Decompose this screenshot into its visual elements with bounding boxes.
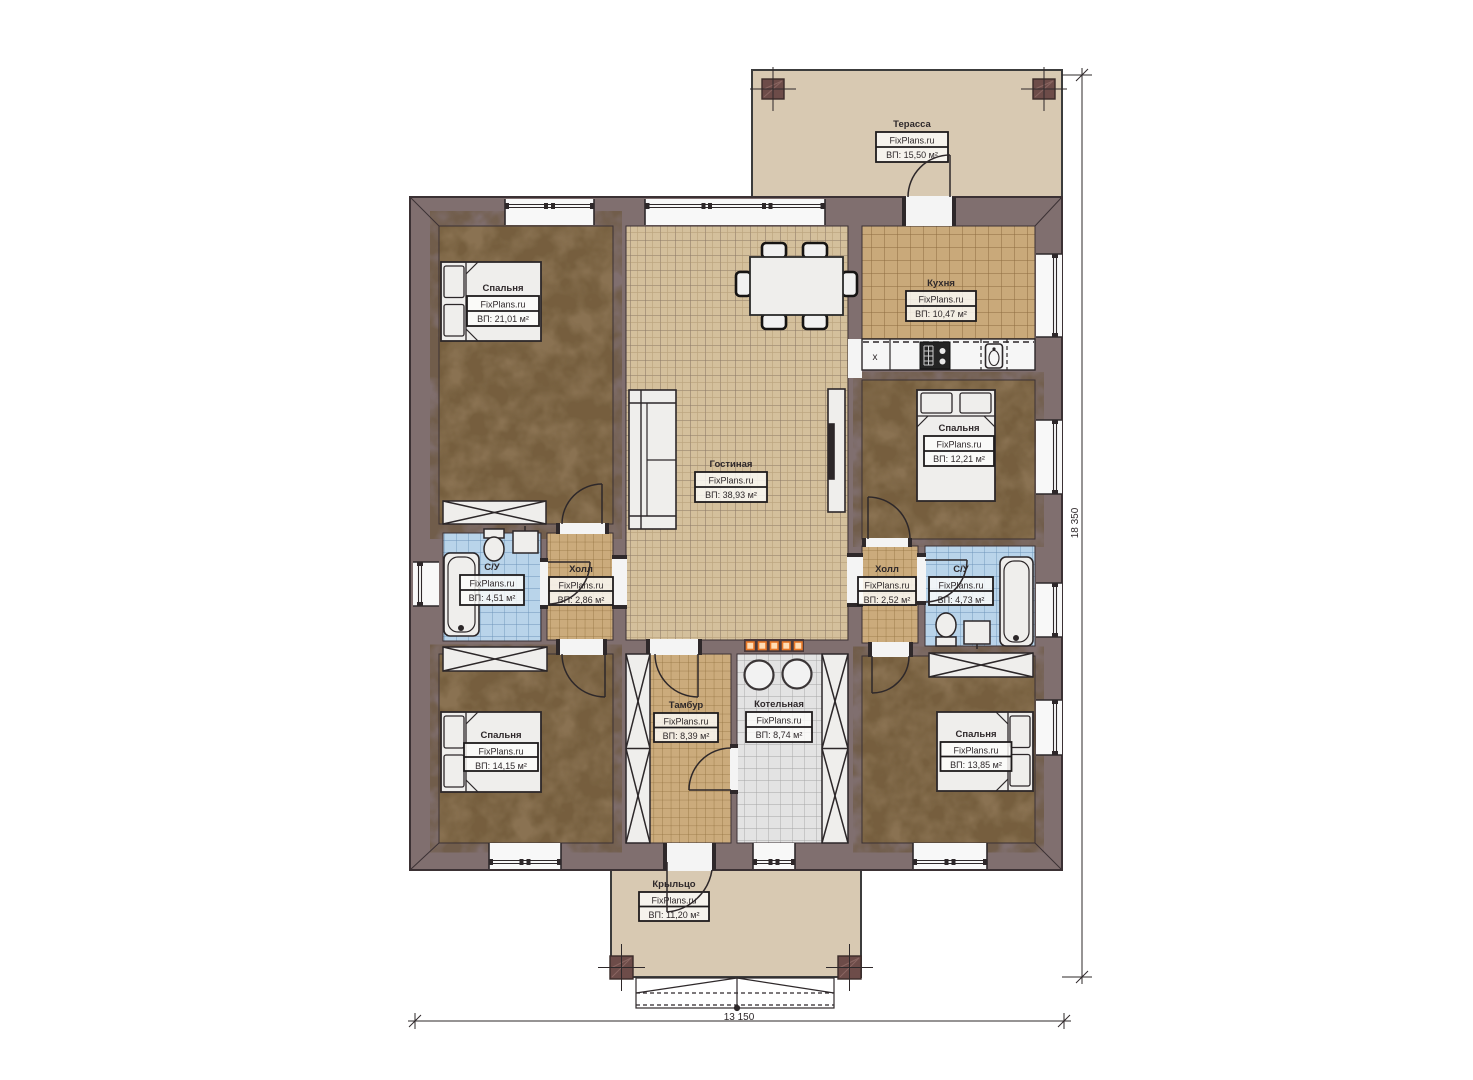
svg-text:FixPlans.ru: FixPlans.ru — [864, 581, 909, 591]
svg-text:ВП: 12,21 м²: ВП: 12,21 м² — [933, 454, 985, 464]
svg-text:FixPlans.ru: FixPlans.ru — [469, 579, 514, 589]
svg-text:18 350: 18 350 — [1070, 507, 1081, 538]
svg-text:ВП: 4,51 м²: ВП: 4,51 м² — [469, 593, 516, 603]
svg-text:Гостиная: Гостиная — [710, 459, 753, 470]
svg-text:Спальня: Спальня — [482, 283, 523, 294]
svg-text:Тамбур: Тамбур — [669, 700, 704, 711]
svg-text:ВП: 8,39 м²: ВП: 8,39 м² — [663, 731, 710, 741]
svg-text:Спальня: Спальня — [938, 423, 979, 434]
svg-text:Холл: Холл — [875, 564, 899, 575]
svg-text:x: x — [873, 352, 878, 363]
svg-text:FixPlans.ru: FixPlans.ru — [756, 716, 801, 726]
svg-text:ВП: 13,85 м²: ВП: 13,85 м² — [950, 760, 1002, 770]
svg-text:Спальня: Спальня — [955, 729, 996, 740]
svg-text:FixPlans.ru: FixPlans.ru — [480, 300, 525, 310]
svg-text:FixPlans.ru: FixPlans.ru — [936, 440, 981, 450]
svg-text:Котельная: Котельная — [754, 699, 804, 710]
svg-text:ВП: 10,47 м²: ВП: 10,47 м² — [915, 309, 967, 319]
svg-text:FixPlans.ru: FixPlans.ru — [889, 136, 934, 146]
svg-text:FixPlans.ru: FixPlans.ru — [663, 717, 708, 727]
svg-text:ВП: 2,52 м²: ВП: 2,52 м² — [864, 595, 911, 605]
svg-text:Спальня: Спальня — [480, 730, 521, 741]
svg-text:Терасса: Терасса — [893, 119, 931, 130]
svg-text:ВП: 21,01 м²: ВП: 21,01 м² — [477, 314, 529, 324]
svg-text:ВП: 8,74 м²: ВП: 8,74 м² — [756, 730, 803, 740]
svg-text:Крыльцо: Крыльцо — [652, 879, 695, 890]
svg-text:ВП: 38,93 м²: ВП: 38,93 м² — [705, 490, 757, 500]
svg-text:FixPlans.ru: FixPlans.ru — [918, 295, 963, 305]
svg-text:FixPlans.ru: FixPlans.ru — [708, 476, 753, 486]
svg-text:С/У: С/У — [484, 562, 500, 573]
svg-text:Кухня: Кухня — [927, 278, 955, 289]
svg-text:ВП: 15,50 м²: ВП: 15,50 м² — [886, 150, 938, 160]
svg-text:FixPlans.ru: FixPlans.ru — [478, 747, 523, 757]
svg-text:13 150: 13 150 — [724, 1012, 755, 1023]
svg-text:FixPlans.ru: FixPlans.ru — [953, 746, 998, 756]
svg-text:ВП: 14,15 м²: ВП: 14,15 м² — [475, 761, 527, 771]
